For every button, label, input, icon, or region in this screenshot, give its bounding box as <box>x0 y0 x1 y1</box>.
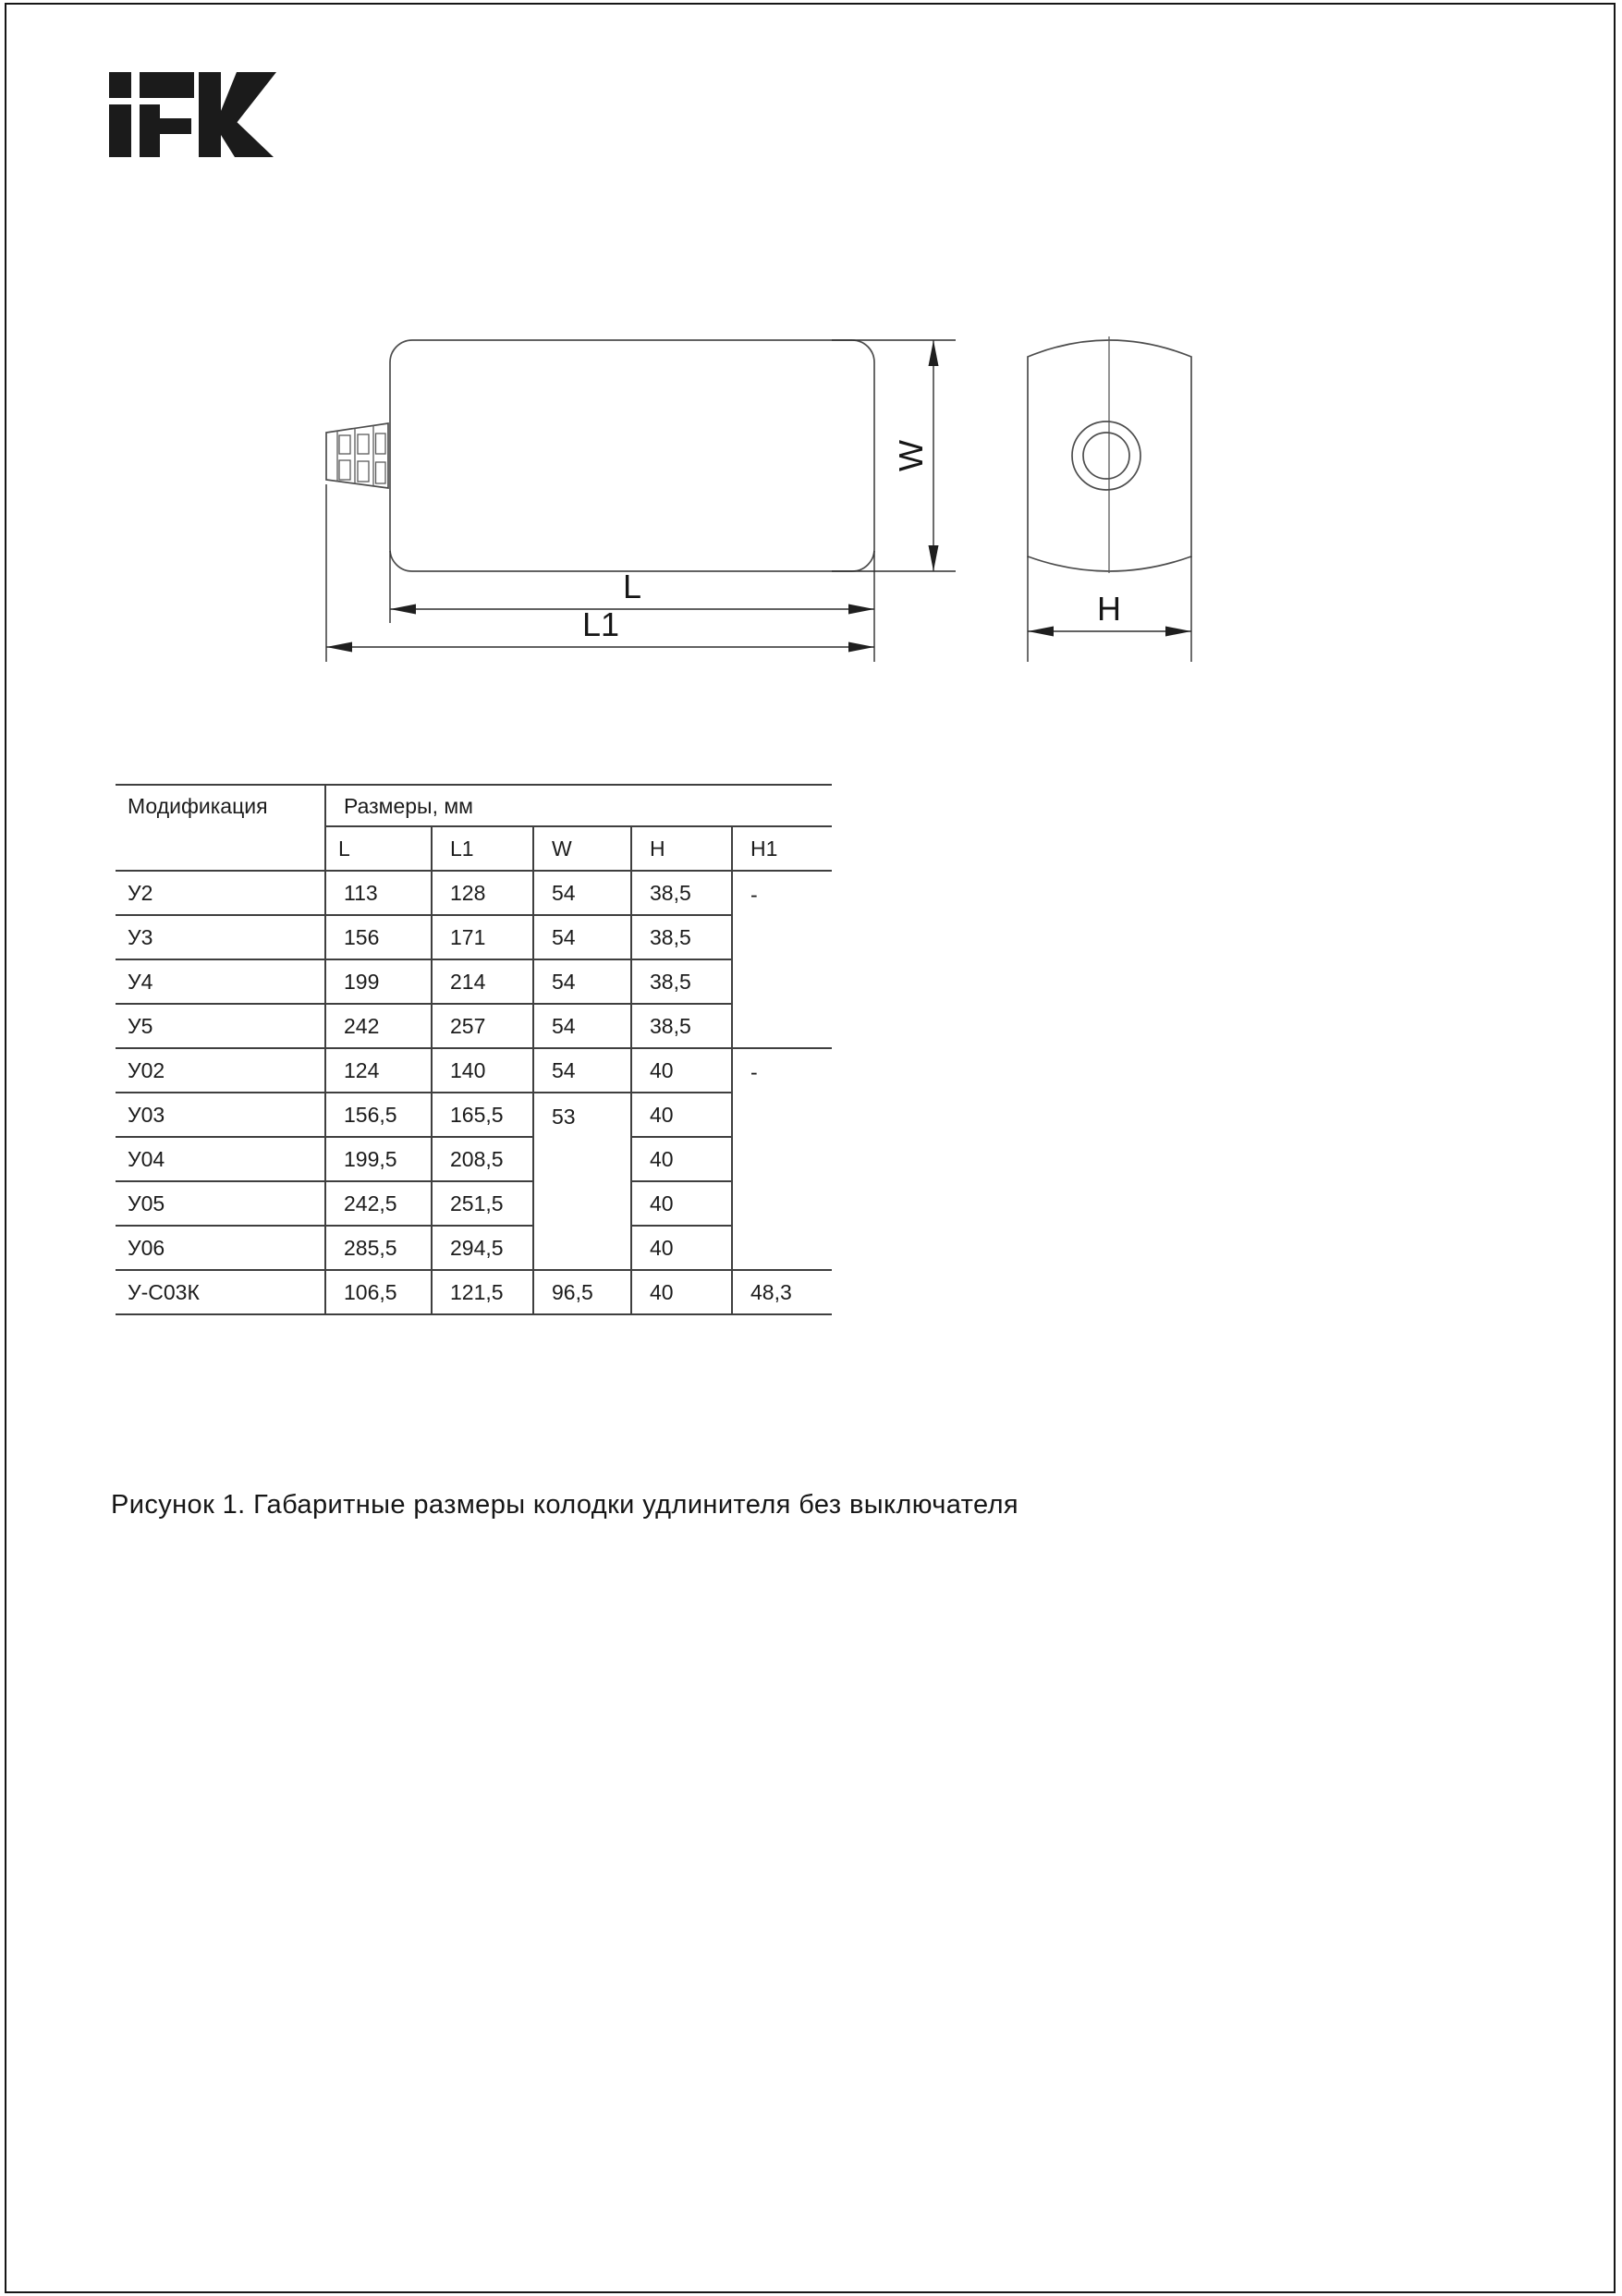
row-label: У02 <box>116 1048 325 1093</box>
cell-h1: 48,3 <box>732 1270 832 1314</box>
cell-l1: 214 <box>432 959 533 1004</box>
row-label: У2 <box>116 871 325 915</box>
cell-l1: 171 <box>432 915 533 959</box>
table-row: У-С03К 106,5 121,5 96,5 40 48,3 <box>116 1270 832 1314</box>
cell-w-merged: 53 <box>533 1093 631 1270</box>
cell-w: 54 <box>533 1048 631 1093</box>
table-row: У05 242,5 251,5 40 <box>116 1181 832 1226</box>
header-dimensions-group: Размеры, мм <box>325 785 832 826</box>
dimension-l: L <box>390 551 874 662</box>
row-label: У3 <box>116 915 325 959</box>
cell-w: 54 <box>533 871 631 915</box>
cell-l1: 208,5 <box>432 1137 533 1181</box>
row-label: У-С03К <box>116 1270 325 1314</box>
label-h: H <box>1097 590 1121 628</box>
row-label: У5 <box>116 1004 325 1048</box>
cell-h: 38,5 <box>631 959 732 1004</box>
cell-l: 124 <box>325 1048 432 1093</box>
dimension-w: W <box>832 340 956 571</box>
cell-l: 156,5 <box>325 1093 432 1137</box>
cell-h: 40 <box>631 1093 732 1137</box>
cell-l: 285,5 <box>325 1226 432 1270</box>
table-row: У2 113 128 54 38,5 - <box>116 871 832 915</box>
figure-caption: Рисунок 1. Габаритные размеры колодки уд… <box>111 1490 1018 1520</box>
cell-h: 40 <box>631 1270 732 1314</box>
cell-l1: 128 <box>432 871 533 915</box>
col-header-w: W <box>533 826 631 871</box>
col-header-l1: L1 <box>432 826 533 871</box>
end-view <box>1028 336 1191 573</box>
cell-h: 40 <box>631 1048 732 1093</box>
cell-h: 38,5 <box>631 1004 732 1048</box>
row-label: У4 <box>116 959 325 1004</box>
label-w: W <box>892 440 930 471</box>
cell-l: 199 <box>325 959 432 1004</box>
row-label: У06 <box>116 1226 325 1270</box>
table-row: У02 124 140 54 40 - <box>116 1048 832 1093</box>
cable-gland <box>326 423 388 488</box>
cell-h1-merged: - <box>732 871 832 1048</box>
row-label: У04 <box>116 1137 325 1181</box>
cell-h: 38,5 <box>631 915 732 959</box>
cell-l1: 140 <box>432 1048 533 1093</box>
table-row: У5 242 257 54 38,5 <box>116 1004 832 1048</box>
dimensions-table: Модификация Размеры, мм L L1 W H H1 У2 1… <box>116 784 832 1315</box>
row-label: У05 <box>116 1181 325 1226</box>
cell-l1: 251,5 <box>432 1181 533 1226</box>
socket-inner-circle <box>1083 433 1129 479</box>
col-header-h1: H1 <box>732 826 832 871</box>
cell-l: 199,5 <box>325 1137 432 1181</box>
cell-h1-merged: - <box>732 1048 832 1270</box>
document-page: { "logo": { "brand": "IEK" }, "figure": … <box>0 0 1622 2296</box>
table-row: У03 156,5 165,5 53 40 <box>116 1093 832 1137</box>
cell-l1: 121,5 <box>432 1270 533 1314</box>
table-row: У04 199,5 208,5 40 <box>116 1137 832 1181</box>
cell-l: 113 <box>325 871 432 915</box>
cell-l: 106,5 <box>325 1270 432 1314</box>
cell-w: 54 <box>533 1004 631 1048</box>
side-view <box>326 340 874 571</box>
cell-h: 40 <box>631 1226 732 1270</box>
table-row: У4 199 214 54 38,5 <box>116 959 832 1004</box>
cell-l1: 165,5 <box>432 1093 533 1137</box>
header-modification: Модификация <box>116 785 325 871</box>
cell-w: 54 <box>533 959 631 1004</box>
label-l: L <box>623 568 641 605</box>
cell-l: 242 <box>325 1004 432 1048</box>
table-row: У06 285,5 294,5 40 <box>116 1226 832 1270</box>
socket-outer-circle <box>1072 421 1140 490</box>
col-header-l: L <box>325 826 432 871</box>
block-body-outline <box>390 340 874 571</box>
cell-l1: 257 <box>432 1004 533 1048</box>
row-label: У03 <box>116 1093 325 1137</box>
cell-w: 96,5 <box>533 1270 631 1314</box>
table-row: У3 156 171 54 38,5 <box>116 915 832 959</box>
dimension-l1: L1 <box>326 484 874 662</box>
cell-h: 40 <box>631 1137 732 1181</box>
cell-l: 242,5 <box>325 1181 432 1226</box>
cell-l1: 294,5 <box>432 1226 533 1270</box>
label-l1: L1 <box>582 605 619 643</box>
cell-l: 156 <box>325 915 432 959</box>
cell-w: 54 <box>533 915 631 959</box>
cell-h: 40 <box>631 1181 732 1226</box>
col-header-h: H <box>631 826 732 871</box>
cell-h: 38,5 <box>631 871 732 915</box>
